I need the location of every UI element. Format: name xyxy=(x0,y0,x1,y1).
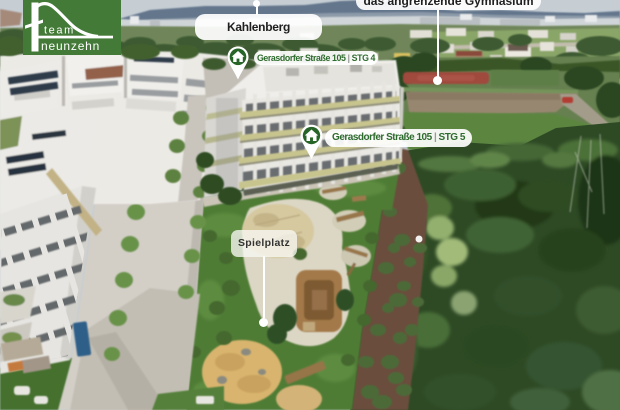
svg-text:team: team xyxy=(44,25,75,37)
svg-text:neunzehn: neunzehn xyxy=(41,39,100,53)
